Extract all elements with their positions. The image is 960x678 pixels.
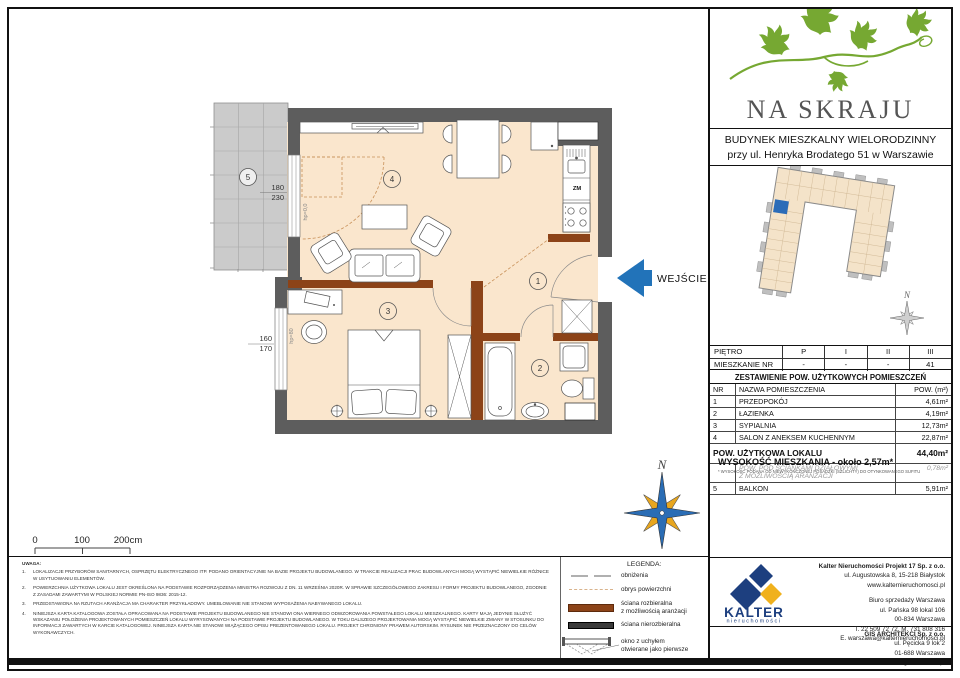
info-panel: NA SKRAJU BUDYNEK MIESZKALNY WIELORODZIN… <box>708 9 951 658</box>
height-label: WYSOKOŚĆ MIESZKANIA - około 2,57m* <box>718 457 951 467</box>
fridge <box>531 122 558 150</box>
legend-title: LEGENDA: <box>627 561 709 568</box>
table-row: 1 PRZEDPOKÓJ 4,61m² <box>710 396 951 408</box>
scale-100: 100 <box>74 535 90 546</box>
bathtub <box>485 343 515 420</box>
dim-window-height: 170 <box>259 344 272 353</box>
height-footnote: * WYSOKOŚĆ PODANA OD NIEWYKOŃCZONEJ POSA… <box>718 469 951 474</box>
room-label-1: 1 <box>536 277 541 286</box>
header-name: NAZWA POMIESZCZENIA <box>736 384 895 395</box>
scale-bar: 0 100 200cm <box>32 535 142 554</box>
legend-item-fixed-wall: ściana nierozbieralna <box>561 621 709 629</box>
removable-wall-swatch-icon <box>568 604 614 612</box>
legend-item-outline: obrys powierzchni <box>561 586 709 594</box>
entrance-marker: WEJŚCIE <box>617 259 707 297</box>
compass-north-label: N <box>657 457 668 472</box>
bedroom-window <box>275 308 287 390</box>
desk-chair <box>302 321 327 344</box>
legend-item-lowering: obniżenia <box>561 572 709 580</box>
site-plan: N <box>710 165 951 346</box>
brand-name: NA SKRAJU <box>710 95 951 125</box>
legend: LEGENDA: obniżenia obrys powierzchni ści… <box>560 557 709 660</box>
dishwasher-label: ZM <box>573 186 582 192</box>
apartment-floor <box>287 122 598 420</box>
table-row: 4 SALON Z ANEKSEM KUCHENNYM 22,87m² <box>710 432 951 444</box>
header-area: POW. (m²) <box>895 384 951 395</box>
disclaimer-notes: UWAGA: 1. LOKALIZACJE PRZYBORÓW SANITARN… <box>22 561 550 639</box>
floor-table: PIĘTRO P I II III MIESZKANIE NR - - - 41 <box>710 345 951 371</box>
area-table-title: ZESTAWIENIE POW. UŻYTKOWYCH POMIESZCZEŃ <box>710 369 951 384</box>
apartment-height: WYSOKOŚĆ MIESZKANIA - około 2,57m* * WYS… <box>710 449 951 474</box>
note-item: 3. PRZEDSTAWIONA NA RZUTACH ARANŻACJA MA… <box>22 601 550 607</box>
table-row: 3 SYPIALNIA 12,73m² <box>710 420 951 432</box>
kalter-logo-icon: KALTER nieruchomości <box>710 558 798 626</box>
room-label-5: 5 <box>246 173 251 182</box>
dim-window-width: 160 <box>259 334 272 343</box>
balcony-row: 5 BALKON 5,91m² <box>710 483 951 495</box>
balcony-door <box>288 155 300 237</box>
lowering-swatch-icon <box>571 575 611 577</box>
scale-200: 200cm <box>114 535 143 546</box>
bed <box>348 330 420 418</box>
bathroom-sink <box>522 403 549 420</box>
window-swatch-icon <box>562 635 620 657</box>
room-label-4: 4 <box>390 175 395 184</box>
company-info: KALTER nieruchomości Kalter Nieruchomośc… <box>710 557 951 659</box>
floor-row: PIĘTRO P I II III <box>710 346 951 359</box>
kalter-name: Kalter Nieruchomości Projekt 17 Sp. z o.… <box>798 562 945 571</box>
floor-col-2: II <box>867 346 909 358</box>
hp-window-label: hp=80 <box>289 328 295 343</box>
site-plan-drawing: N <box>710 166 949 344</box>
floor-col-p: P <box>782 346 824 358</box>
site-compass-icon: N <box>890 290 924 335</box>
legend-item-removable-wall: ściana rozbieralna z możliwością aranżac… <box>561 600 709 616</box>
bottom-bar <box>9 658 951 665</box>
entrance-opening <box>598 257 612 302</box>
room-label-2: 2 <box>538 364 543 373</box>
sofa <box>349 249 420 282</box>
table-row: 2 ŁAZIENKA 4,19m² <box>710 408 951 420</box>
building-street: przy ul. Henryka Brodatego 51 w Warszawi… <box>710 148 951 162</box>
fixed-wall-swatch-icon <box>568 622 614 629</box>
highlighted-unit <box>773 199 789 214</box>
entrance-label: WEJŚCIE <box>657 272 707 285</box>
floor-col-3: III <box>909 346 951 358</box>
kalter-contact: Kalter Nieruchomości Projekt 17 Sp. z o.… <box>798 558 951 626</box>
site-compass-north-label: N <box>903 290 911 300</box>
dim-balcony-door-width: 180 <box>271 183 284 192</box>
toilet <box>562 378 595 399</box>
catalog-sheet: 5 4 3 2 1 180 230 160 170 hp=0,0 hp=80 Z… <box>0 0 960 678</box>
building-type: BUDYNEK MIESZKALNY WIELORODZINNY <box>710 133 951 147</box>
hp-door-label: hp=0,0 <box>303 204 309 221</box>
coffee-table <box>362 205 407 229</box>
building-address: BUDYNEK MIESZKALNY WIELORODZINNY przy ul… <box>710 128 951 166</box>
outline-swatch-icon <box>569 589 613 590</box>
room-label-3: 3 <box>386 307 391 316</box>
header-nr: NR <box>710 384 736 395</box>
notes-title: UWAGA: <box>22 561 550 567</box>
stove <box>563 203 590 232</box>
ivy-logo-icon <box>710 9 951 95</box>
compass-rose-icon: N <box>624 457 700 549</box>
area-table: NR NAZWA POMIESZCZENIA POW. (m²) 1 PRZED… <box>710 383 951 495</box>
note-item: 1. LOKALIZACJE PRZYBORÓW SANITARNYCH, OS… <box>22 569 550 582</box>
dim-balcony-door-height: 230 <box>271 193 284 202</box>
kalter-brand-sub: nieruchomości <box>727 619 782 624</box>
hallway <box>562 300 592 333</box>
dining-table <box>457 120 499 178</box>
shaft <box>565 403 595 420</box>
brand-logo: NA SKRAJU <box>710 9 951 128</box>
note-item: 2. POWIERZCHNIA UŻYTKOWA LOKALU JEST OKR… <box>22 585 550 598</box>
washing-machine <box>560 343 588 371</box>
area-table-header: NR NAZWA POMIESZCZENIA POW. (m²) <box>710 384 951 396</box>
note-item: 4. NINIEJSZA KARTA KATALOGOWA ZOSTAŁA OP… <box>22 611 550 637</box>
scale-0: 0 <box>32 535 37 546</box>
floor-row-label: PIĘTRO <box>710 346 782 358</box>
legend-item-window: okno z uchyłem otwierane jako pierwsze <box>561 635 709 657</box>
entrance-arrow-icon <box>617 259 644 297</box>
shaft-closet <box>558 122 598 140</box>
kalter-section: KALTER nieruchomości Kalter Nieruchomośc… <box>710 558 951 627</box>
floor-col-1: I <box>824 346 866 358</box>
